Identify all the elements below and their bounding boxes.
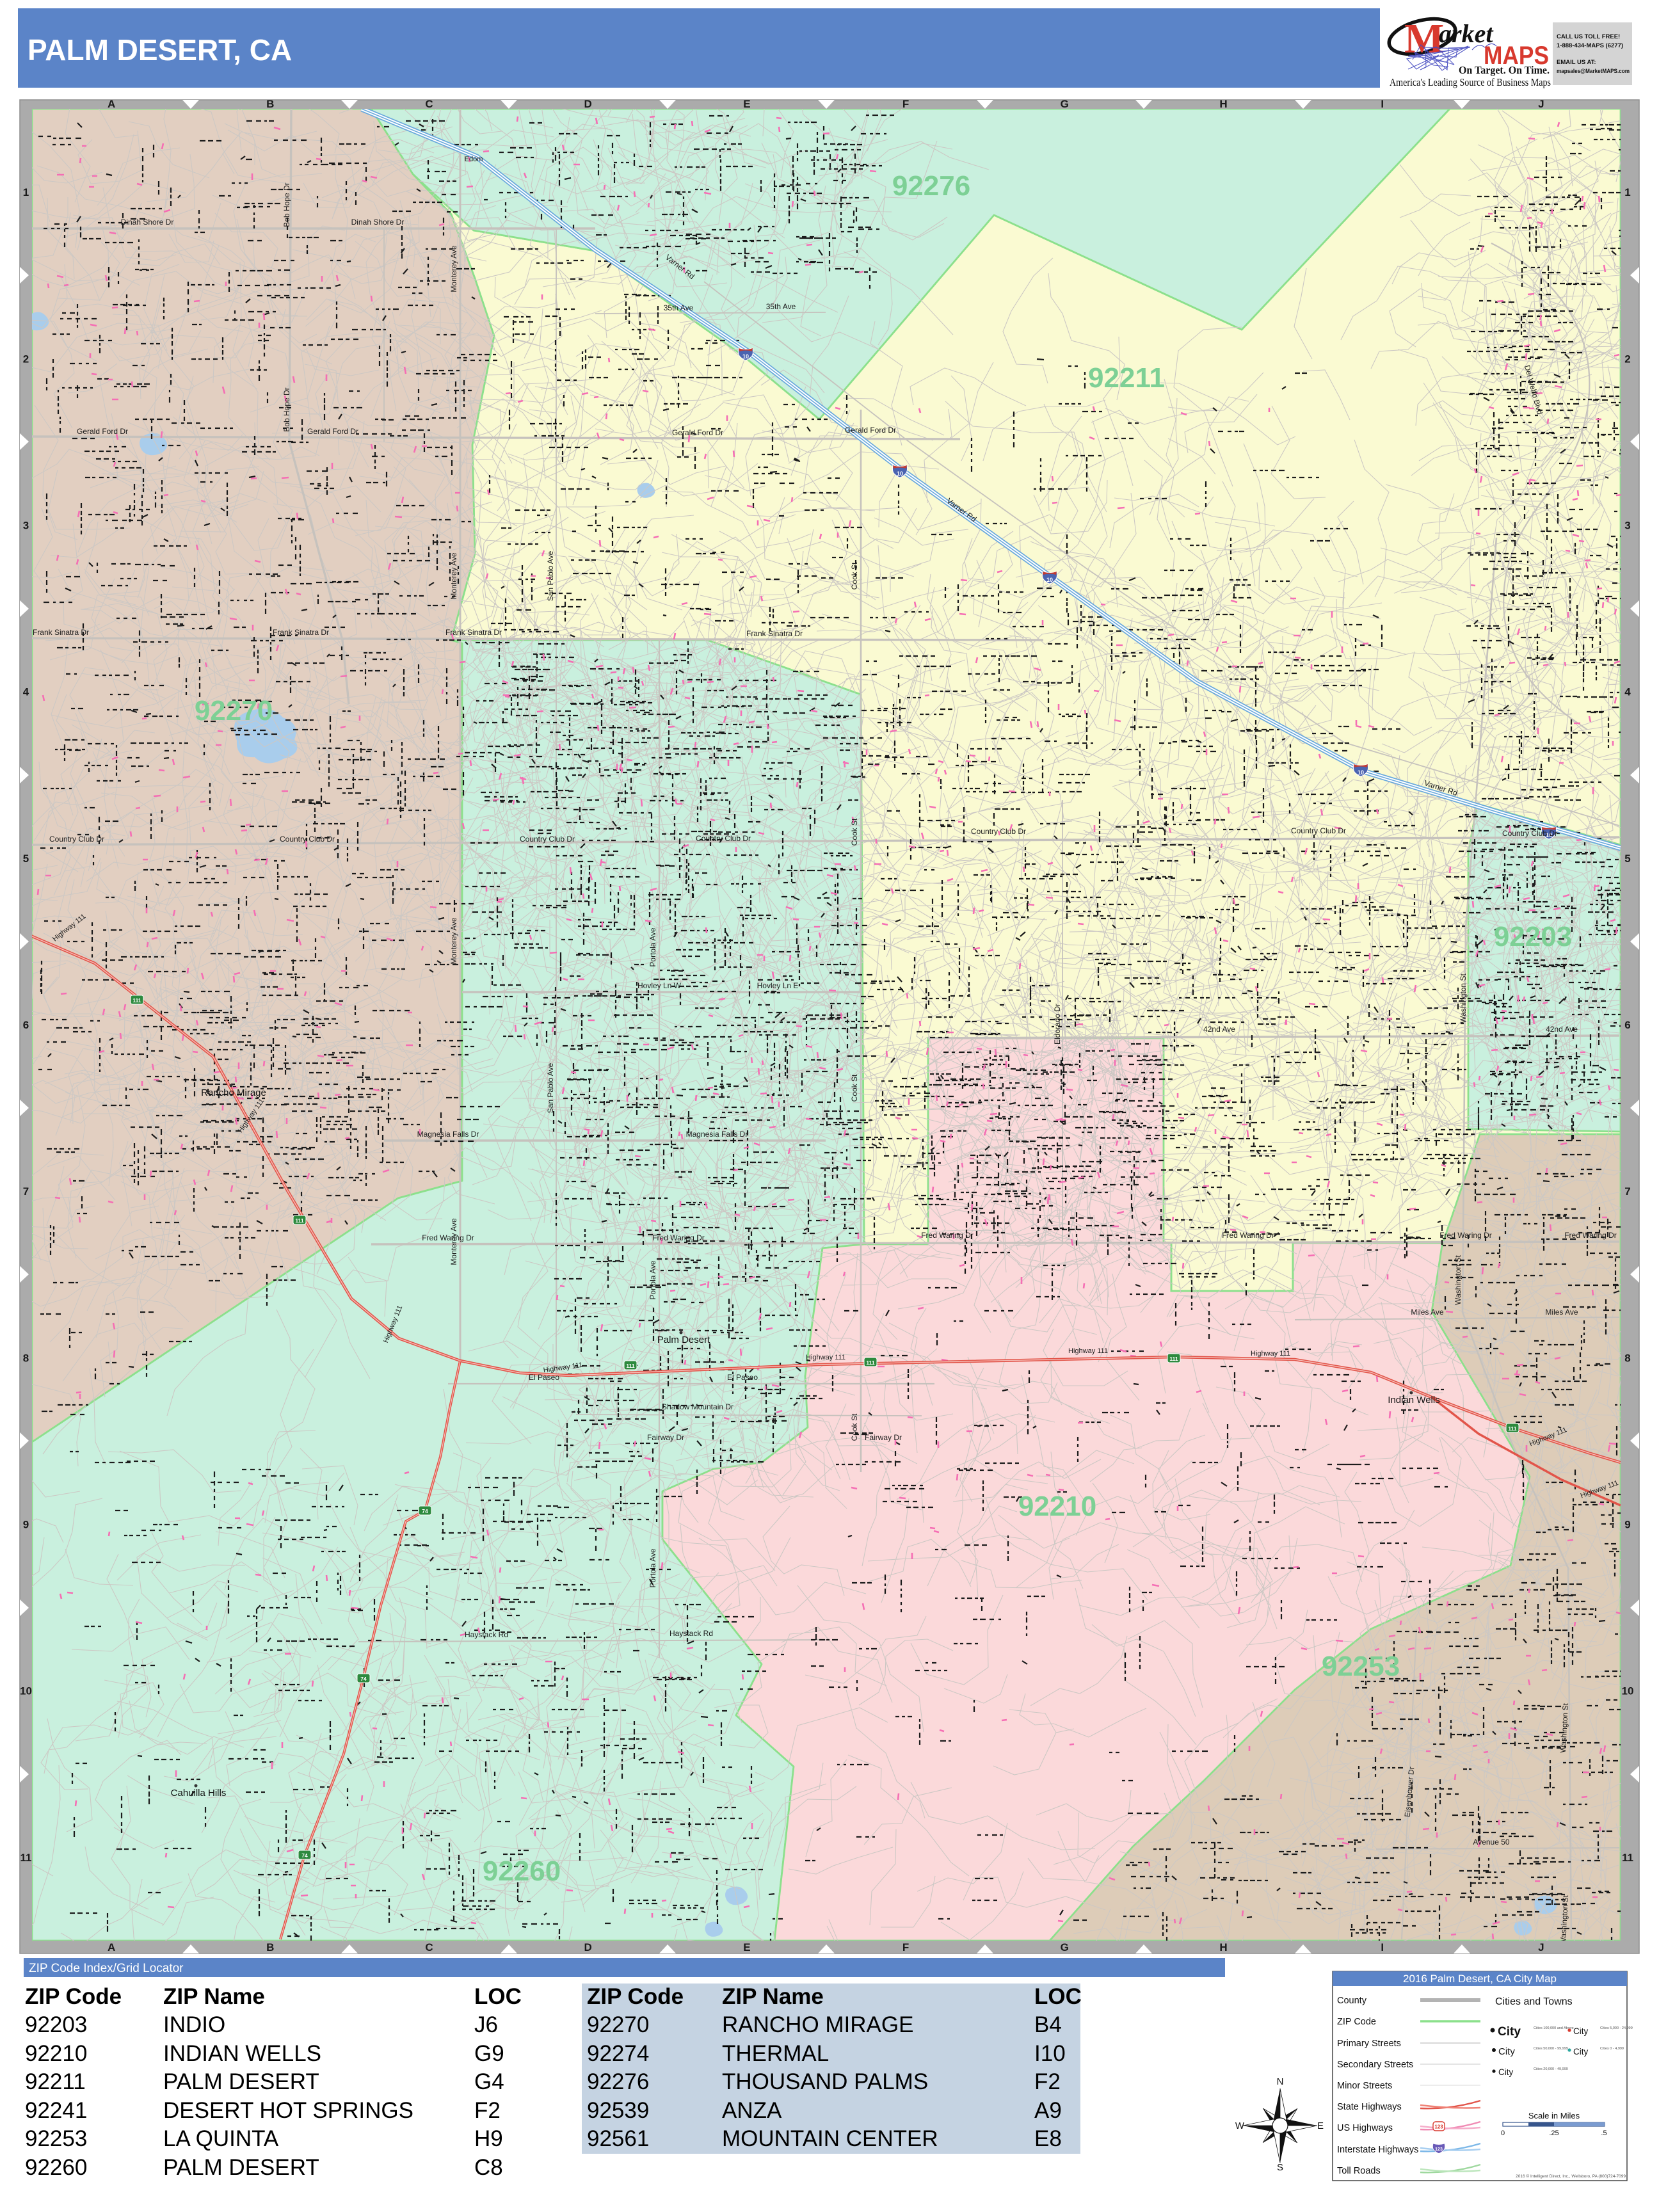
svg-text:7: 7 bbox=[1624, 1185, 1630, 1198]
svg-text:Magnesia Falls Dr: Magnesia Falls Dr bbox=[686, 1130, 748, 1139]
svg-text:Cities 0 - 4,999: Cities 0 - 4,999 bbox=[1600, 2047, 1624, 2051]
svg-text:Fred Waring Dr: Fred Waring Dr bbox=[422, 1233, 474, 1242]
svg-text:Gerald Ford Dr: Gerald Ford Dr bbox=[307, 427, 358, 436]
svg-text:Rancho Mirage: Rancho Mirage bbox=[201, 1087, 266, 1098]
svg-text:Monterey Ave: Monterey Ave bbox=[449, 245, 458, 292]
svg-text:10: 10 bbox=[1622, 1685, 1634, 1697]
svg-text:Frank Sinatra Dr: Frank Sinatra Dr bbox=[33, 628, 89, 637]
svg-text:State Highways: State Highways bbox=[1337, 2102, 1402, 2112]
svg-text:City: City bbox=[1498, 2067, 1513, 2077]
svg-text:Country Club Dr: Country Club Dr bbox=[520, 835, 575, 844]
svg-text:Country Club Dr: Country Club Dr bbox=[49, 835, 104, 844]
svg-text:11: 11 bbox=[1622, 1852, 1633, 1864]
svg-text:San Pablo Ave: San Pablo Ave bbox=[546, 550, 555, 601]
svg-text:D: D bbox=[584, 98, 592, 110]
svg-text:I: I bbox=[1381, 98, 1384, 110]
svg-text:D: D bbox=[584, 1941, 592, 1953]
svg-text:F: F bbox=[902, 98, 909, 110]
svg-text:ANZA: ANZA bbox=[722, 2098, 782, 2123]
svg-text:Fred Waring Dr: Fred Waring Dr bbox=[1439, 1231, 1492, 1240]
svg-text:Interstate Highways: Interstate Highways bbox=[1337, 2145, 1418, 2155]
svg-text:Scale in Miles: Scale in Miles bbox=[1528, 2111, 1580, 2120]
svg-text:Haystack Rd: Haystack Rd bbox=[669, 1629, 713, 1638]
svg-text:Cook St: Cook St bbox=[850, 818, 859, 846]
svg-text:THERMAL: THERMAL bbox=[722, 2041, 829, 2066]
svg-text:ZIP Name: ZIP Name bbox=[722, 1984, 824, 2009]
svg-text:92203: 92203 bbox=[25, 2012, 87, 2037]
svg-text:E: E bbox=[1317, 2120, 1324, 2131]
svg-text:74: 74 bbox=[301, 1852, 308, 1859]
svg-text:92253: 92253 bbox=[25, 2126, 87, 2151]
svg-text:LA QUINTA: LA QUINTA bbox=[163, 2126, 279, 2151]
svg-text:Palm Desert: Palm Desert bbox=[657, 1334, 710, 1345]
svg-text:C: C bbox=[425, 1941, 433, 1953]
svg-text:ZIP Code Index/Grid Locator: ZIP Code Index/Grid Locator bbox=[29, 1962, 184, 1975]
svg-text:INDIO: INDIO bbox=[163, 2012, 225, 2037]
svg-text:0: 0 bbox=[1501, 2129, 1505, 2137]
svg-text:Cities and Towns: Cities and Towns bbox=[1495, 1996, 1573, 2007]
svg-text:INDIAN WELLS: INDIAN WELLS bbox=[163, 2041, 321, 2066]
svg-text:mapsales@MarketMAPS.com: mapsales@MarketMAPS.com bbox=[1557, 68, 1630, 74]
svg-text:B4: B4 bbox=[1034, 2012, 1062, 2037]
svg-text:2016 Palm Desert, CA City Map: 2016 Palm Desert, CA City Map bbox=[1403, 1973, 1557, 1985]
svg-text:PALM DESERT: PALM DESERT bbox=[163, 2155, 319, 2180]
svg-text:111: 111 bbox=[626, 1363, 635, 1369]
svg-text:Cook St: Cook St bbox=[850, 562, 859, 589]
svg-text:ZIP Name: ZIP Name bbox=[163, 1984, 265, 2009]
svg-text:G9: G9 bbox=[474, 2041, 504, 2066]
svg-text:35th Ave: 35th Ave bbox=[664, 303, 694, 312]
svg-text:Shadow Mountain Dr: Shadow Mountain Dr bbox=[662, 1402, 733, 1411]
svg-text:Miles Ave: Miles Ave bbox=[1545, 1308, 1578, 1317]
svg-text:Fairway Dr: Fairway Dr bbox=[647, 1433, 684, 1442]
svg-text:2016 © Intelligent Direct, Inc: 2016 © Intelligent Direct, Inc., Wellsbo… bbox=[1516, 2174, 1626, 2179]
svg-text:Highway 111: Highway 111 bbox=[806, 1354, 846, 1361]
svg-text:Magnesia Falls Dr: Magnesia Falls Dr bbox=[417, 1130, 479, 1139]
svg-text:Indian Wells: Indian Wells bbox=[1388, 1395, 1439, 1406]
svg-text:11: 11 bbox=[20, 1852, 32, 1864]
svg-text:6: 6 bbox=[1624, 1019, 1630, 1031]
svg-text:92561: 92561 bbox=[587, 2126, 649, 2151]
svg-text:EMAIL US AT:: EMAIL US AT: bbox=[1557, 59, 1596, 66]
svg-text:LOC: LOC bbox=[474, 1984, 522, 2009]
svg-text:6: 6 bbox=[23, 1019, 29, 1031]
svg-text:92260: 92260 bbox=[483, 1855, 561, 1887]
svg-text:8: 8 bbox=[23, 1352, 29, 1364]
svg-text:92270: 92270 bbox=[587, 2012, 649, 2037]
svg-text:MOUNTAIN CENTER: MOUNTAIN CENTER bbox=[722, 2126, 938, 2151]
svg-text:92203: 92203 bbox=[1494, 921, 1572, 952]
svg-text:123: 123 bbox=[1434, 2124, 1443, 2130]
svg-text:92539: 92539 bbox=[587, 2098, 649, 2123]
svg-text:I10: I10 bbox=[1034, 2041, 1066, 2066]
svg-text:92270: 92270 bbox=[195, 695, 273, 726]
svg-text:4: 4 bbox=[23, 686, 29, 698]
svg-text:Minor Streets: Minor Streets bbox=[1337, 2081, 1392, 2091]
svg-text:92253: 92253 bbox=[1322, 1651, 1400, 1682]
svg-text:C8: C8 bbox=[474, 2155, 503, 2180]
svg-text:Cities 20,000 - 49,999: Cities 20,000 - 49,999 bbox=[1534, 2067, 1568, 2071]
svg-text:1-888-434-MAPS (6277): 1-888-434-MAPS (6277) bbox=[1557, 42, 1623, 49]
svg-text:F: F bbox=[902, 1941, 909, 1953]
svg-text:123: 123 bbox=[1435, 2147, 1443, 2152]
svg-text:Highway 111: Highway 111 bbox=[1251, 1350, 1290, 1358]
svg-text:2: 2 bbox=[1624, 353, 1630, 365]
svg-text:PALM DESERT, CA: PALM DESERT, CA bbox=[28, 33, 292, 67]
svg-text:10: 10 bbox=[1046, 577, 1053, 583]
svg-text:H9: H9 bbox=[474, 2126, 503, 2151]
svg-text:Bob Hope Dr: Bob Hope Dr bbox=[282, 387, 291, 431]
svg-text:Portola Ave: Portola Ave bbox=[648, 1548, 657, 1587]
svg-text:Country Club Dr: Country Club Dr bbox=[1502, 829, 1557, 838]
svg-text:92274: 92274 bbox=[587, 2041, 649, 2066]
svg-text:10: 10 bbox=[20, 1685, 32, 1697]
svg-text:Gerald Ford Dr: Gerald Ford Dr bbox=[672, 428, 723, 437]
svg-text:A: A bbox=[108, 98, 115, 110]
svg-text:Monterey Ave: Monterey Ave bbox=[449, 552, 458, 599]
svg-text:DESERT HOT SPRINGS: DESERT HOT SPRINGS bbox=[163, 2098, 413, 2123]
svg-text:Secondary Streets: Secondary Streets bbox=[1337, 2060, 1413, 2070]
svg-text:City: City bbox=[1573, 2026, 1588, 2036]
svg-text:Bob Hope Dr: Bob Hope Dr bbox=[282, 182, 291, 227]
svg-text:C: C bbox=[425, 98, 433, 110]
svg-text:A: A bbox=[108, 1941, 115, 1953]
svg-text:US Highways: US Highways bbox=[1337, 2123, 1393, 2133]
svg-text:74: 74 bbox=[422, 1508, 428, 1514]
svg-text:Cities 100,000 and Above: Cities 100,000 and Above bbox=[1534, 2026, 1574, 2030]
svg-text:.5: .5 bbox=[1601, 2129, 1607, 2137]
svg-text:Hovley Ln E: Hovley Ln E bbox=[757, 981, 799, 990]
svg-text:10: 10 bbox=[742, 353, 749, 360]
svg-text:RANCHO MIRAGE: RANCHO MIRAGE bbox=[722, 2012, 913, 2037]
svg-text:Portola Ave: Portola Ave bbox=[648, 927, 657, 966]
svg-text:74: 74 bbox=[360, 1676, 367, 1682]
svg-text:3: 3 bbox=[1624, 519, 1630, 531]
svg-text:Dinah Shore Dr: Dinah Shore Dr bbox=[121, 218, 174, 227]
svg-text:92276: 92276 bbox=[892, 170, 970, 202]
svg-text:Cities 5,000 - 24,999: Cities 5,000 - 24,999 bbox=[1600, 2026, 1633, 2030]
svg-text:Cities 50,000 - 99,999: Cities 50,000 - 99,999 bbox=[1534, 2047, 1568, 2051]
svg-text:Avenue 50: Avenue 50 bbox=[1473, 1838, 1509, 1847]
svg-text:92276: 92276 bbox=[587, 2069, 649, 2094]
svg-text:Fred Waring Dr: Fred Waring Dr bbox=[1222, 1231, 1274, 1240]
svg-text:G4: G4 bbox=[474, 2069, 504, 2094]
svg-text:Cahuilla Hills: Cahuilla Hills bbox=[171, 1788, 227, 1799]
svg-text:Miles Ave: Miles Ave bbox=[1411, 1308, 1443, 1317]
svg-text:92210: 92210 bbox=[25, 2041, 87, 2066]
svg-text:Washington St: Washington St bbox=[1454, 1255, 1463, 1305]
svg-text:B: B bbox=[266, 98, 274, 110]
svg-text:4: 4 bbox=[1624, 686, 1631, 698]
svg-text:On Target. On Time.: On Target. On Time. bbox=[1459, 64, 1550, 76]
svg-text:CALL US TOLL FREE!: CALL US TOLL FREE! bbox=[1557, 33, 1620, 40]
svg-text:Gerald Ford Dr: Gerald Ford Dr bbox=[845, 426, 896, 435]
svg-text:Frank Sinatra Dr: Frank Sinatra Dr bbox=[445, 628, 502, 637]
svg-text:Fred Waring Dr: Fred Waring Dr bbox=[1564, 1231, 1617, 1240]
svg-text:Monterey Ave: Monterey Ave bbox=[449, 917, 458, 964]
svg-text:H: H bbox=[1219, 1941, 1227, 1953]
svg-text:8: 8 bbox=[1624, 1352, 1630, 1364]
svg-text:7: 7 bbox=[23, 1185, 29, 1198]
svg-text:Washington St: Washington St bbox=[1459, 974, 1468, 1023]
svg-text:42nd Ave: 42nd Ave bbox=[1546, 1025, 1578, 1034]
svg-text:92211: 92211 bbox=[1088, 362, 1165, 394]
svg-text:PALM DESERT: PALM DESERT bbox=[163, 2069, 319, 2094]
svg-text:.25: .25 bbox=[1549, 2129, 1559, 2137]
svg-text:Eldorado Dr: Eldorado Dr bbox=[1053, 1004, 1062, 1045]
svg-text:W: W bbox=[1235, 2120, 1245, 2131]
svg-text:City: City bbox=[1498, 2025, 1521, 2039]
svg-text:ZIP Code: ZIP Code bbox=[25, 1984, 122, 2009]
svg-text:G: G bbox=[1061, 98, 1069, 110]
svg-text:42nd Ave: 42nd Ave bbox=[1203, 1025, 1235, 1034]
svg-text:Cook St: Cook St bbox=[850, 1074, 859, 1102]
svg-text:Edom: Edom bbox=[465, 156, 483, 163]
svg-text:El Paseo: El Paseo bbox=[727, 1373, 758, 1382]
svg-text:F2: F2 bbox=[1034, 2069, 1061, 2094]
svg-text:5: 5 bbox=[23, 853, 29, 865]
svg-text:J6: J6 bbox=[474, 2012, 498, 2037]
svg-text:1: 1 bbox=[1624, 186, 1630, 198]
svg-text:Primary Streets: Primary Streets bbox=[1337, 2039, 1401, 2049]
svg-text:Haystack Rd: Haystack Rd bbox=[465, 1630, 508, 1639]
svg-text:111: 111 bbox=[1508, 1425, 1517, 1432]
svg-text:9: 9 bbox=[1624, 1519, 1630, 1531]
svg-text:F2: F2 bbox=[474, 2098, 501, 2123]
svg-text:1: 1 bbox=[23, 186, 29, 198]
svg-text:Fred Waring Dr: Fred Waring Dr bbox=[921, 1231, 974, 1240]
svg-text:2: 2 bbox=[23, 353, 29, 365]
svg-text:Fred Waring Dr: Fred Waring Dr bbox=[652, 1233, 705, 1242]
svg-text:Country Club Dr: Country Club Dr bbox=[280, 835, 335, 844]
svg-text:I: I bbox=[1381, 1941, 1384, 1953]
svg-text:Country Club Dr: Country Club Dr bbox=[971, 827, 1026, 836]
svg-text:Cook St: Cook St bbox=[850, 1413, 859, 1441]
svg-text:ZIP Code: ZIP Code bbox=[587, 1984, 684, 2009]
svg-text:H: H bbox=[1219, 98, 1227, 110]
svg-text:10: 10 bbox=[1358, 769, 1364, 776]
svg-text:10: 10 bbox=[897, 470, 903, 477]
svg-text:San Pablo Ave: San Pablo Ave bbox=[546, 1062, 555, 1113]
svg-text:America's Leading Source of B: America's Leading Source of Business Map… bbox=[1390, 76, 1551, 88]
svg-text:5: 5 bbox=[1624, 853, 1630, 865]
svg-text:Highway 111: Highway 111 bbox=[1068, 1347, 1108, 1355]
svg-text:92241: 92241 bbox=[25, 2098, 87, 2123]
svg-text:J: J bbox=[1538, 1941, 1544, 1953]
svg-text:Country Club Dr: Country Club Dr bbox=[1291, 826, 1346, 835]
svg-text:J: J bbox=[1538, 98, 1544, 110]
svg-text:G: G bbox=[1061, 1941, 1069, 1953]
svg-text:92211: 92211 bbox=[25, 2069, 86, 2094]
svg-text:LOC: LOC bbox=[1034, 1984, 1082, 2009]
svg-text:111: 111 bbox=[1169, 1356, 1178, 1362]
svg-text:111: 111 bbox=[866, 1359, 875, 1366]
svg-text:E: E bbox=[743, 98, 750, 110]
svg-text:City: City bbox=[1573, 2047, 1588, 2056]
svg-text:Frank Sinatra Dr: Frank Sinatra Dr bbox=[273, 628, 329, 637]
svg-text:Toll Roads: Toll Roads bbox=[1337, 2166, 1381, 2176]
svg-text:9: 9 bbox=[23, 1519, 29, 1531]
svg-text:Monterey Ave: Monterey Ave bbox=[449, 1218, 458, 1265]
svg-text:County: County bbox=[1337, 1996, 1367, 2006]
svg-text:E8: E8 bbox=[1034, 2126, 1062, 2151]
svg-text:Frank Sinatra Dr: Frank Sinatra Dr bbox=[746, 629, 803, 638]
svg-text:111: 111 bbox=[295, 1217, 304, 1224]
svg-text:A9: A9 bbox=[1034, 2098, 1062, 2123]
svg-text:111: 111 bbox=[132, 997, 141, 1004]
svg-text:Dinah Shore Dr: Dinah Shore Dr bbox=[351, 218, 405, 227]
svg-text:City: City bbox=[1498, 2046, 1515, 2057]
svg-text:Portola Ave: Portola Ave bbox=[648, 1260, 657, 1299]
svg-text:E: E bbox=[743, 1941, 750, 1953]
svg-text:THOUSAND PALMS: THOUSAND PALMS bbox=[722, 2069, 928, 2094]
svg-text:Gerald Ford Dr: Gerald Ford Dr bbox=[77, 427, 128, 436]
svg-text:35th Ave: 35th Ave bbox=[766, 302, 796, 311]
svg-text:B: B bbox=[266, 1941, 274, 1953]
svg-text:3: 3 bbox=[23, 519, 29, 531]
svg-text:Country Club Dr: Country Club Dr bbox=[696, 834, 751, 843]
svg-text:92210: 92210 bbox=[1018, 1491, 1096, 1522]
svg-text:Fairway Dr: Fairway Dr bbox=[865, 1433, 902, 1442]
svg-text:Hovley Ln W: Hovley Ln W bbox=[637, 981, 682, 990]
svg-text:ZIP Code: ZIP Code bbox=[1337, 2017, 1376, 2027]
svg-text:N: N bbox=[1277, 2076, 1284, 2087]
svg-text:S: S bbox=[1277, 2162, 1283, 2173]
svg-text:92260: 92260 bbox=[25, 2155, 87, 2180]
